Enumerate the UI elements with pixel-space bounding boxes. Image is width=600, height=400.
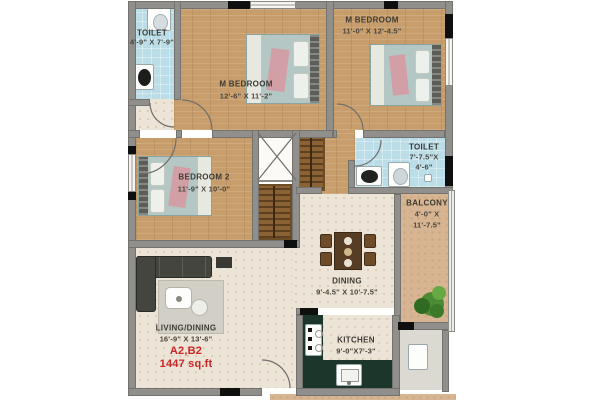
wall <box>252 130 259 248</box>
pillow <box>293 41 309 67</box>
plant-leaf <box>432 286 446 300</box>
room-dims: 4'-0" X <box>415 210 440 219</box>
bed-sheet <box>371 45 384 105</box>
wall <box>212 130 333 138</box>
window-frame <box>445 156 453 186</box>
bed-throw <box>389 54 409 95</box>
room-label: TOILET <box>409 143 439 152</box>
hatch-line <box>273 186 275 238</box>
chair-icon <box>320 234 332 248</box>
plant-icon <box>414 284 448 320</box>
room-label: M BEDROOM <box>345 16 398 25</box>
wall <box>296 315 303 392</box>
wc-bowl <box>393 168 408 185</box>
window-frame <box>284 240 297 248</box>
plate <box>344 237 352 245</box>
room-label: M BEDROOM <box>219 80 272 89</box>
plant-leaf <box>430 304 444 318</box>
unit-area: 1447 sq.ft <box>160 358 213 370</box>
washbasin-icon <box>356 166 382 186</box>
sink-basin <box>341 369 359 382</box>
side-table-icon <box>216 257 232 268</box>
window-frame <box>128 146 136 154</box>
plant-leaf <box>414 298 430 314</box>
wall <box>292 130 300 242</box>
wc-icon <box>388 162 410 187</box>
hatch-line <box>310 135 312 189</box>
window-frame <box>300 308 318 315</box>
wall <box>128 130 140 138</box>
wall <box>128 388 262 396</box>
room-label: BALCONY <box>406 199 448 208</box>
pillow <box>415 50 430 74</box>
room-dims: 11'-0" X 12'-4.5" <box>342 27 401 36</box>
wc-icon <box>147 7 171 31</box>
room-dims: 7'-7.5"X <box>409 153 438 162</box>
washbasin-icon <box>134 64 154 90</box>
bed-headboard <box>432 45 441 105</box>
window-frame <box>384 1 398 9</box>
pillow <box>293 73 309 99</box>
sink-tap <box>347 381 351 385</box>
window <box>128 154 136 192</box>
coffee-table-icon <box>165 287 192 309</box>
wall <box>348 187 453 194</box>
pillow <box>150 162 165 186</box>
wall <box>363 130 445 138</box>
wall <box>442 330 449 392</box>
unit-code: A2,B2 <box>170 345 202 357</box>
bed-headboard <box>310 35 319 103</box>
window <box>445 38 453 86</box>
room-dims: 9'-0"X7'-3" <box>336 347 376 356</box>
room-label: KITCHEN <box>337 336 375 345</box>
room-dims: 4'-6" <box>415 163 432 172</box>
wall <box>128 99 150 106</box>
window-frame <box>220 388 240 396</box>
room-label: DINING <box>332 277 362 286</box>
plate <box>344 248 352 256</box>
pillow <box>150 189 165 213</box>
floor-drain-icon <box>424 174 432 182</box>
window-frame <box>398 322 414 330</box>
basin-bowl <box>138 69 151 86</box>
window-frame <box>128 192 136 200</box>
shaft-hatch <box>297 133 325 191</box>
wall <box>326 1 334 138</box>
window-frame <box>445 14 453 38</box>
wall <box>296 388 400 396</box>
stove-knob <box>308 346 312 350</box>
room-dims: 11'-9" X 10'-0" <box>178 185 230 194</box>
room-dims: 16'-9" X 13'-6" <box>160 335 213 344</box>
wall <box>128 240 300 248</box>
room-label: TOILET <box>137 29 167 38</box>
burner <box>315 330 323 338</box>
table-decor <box>176 296 182 302</box>
chair-icon <box>364 252 376 266</box>
living-dining-opening <box>292 242 300 308</box>
basin-bowl <box>361 170 378 183</box>
bed-headboard <box>139 157 148 215</box>
burner <box>315 344 323 352</box>
room-dims: 9'-4.5" X 10'-7.5" <box>316 288 378 297</box>
pillow <box>415 78 430 102</box>
bed-icon-m-bedroom-right <box>370 44 442 106</box>
room-dims: 11'-7.5" <box>413 221 441 230</box>
chair-icon <box>320 252 332 266</box>
wall <box>296 187 322 194</box>
shaft-hatch <box>256 184 292 240</box>
wall <box>174 1 181 100</box>
room-label: LIVING/DINING <box>156 324 217 333</box>
sofa-icon-chaise <box>136 256 156 312</box>
wall <box>176 130 182 138</box>
chair-icon <box>364 234 376 248</box>
stove-knob <box>308 328 312 332</box>
ottoman-icon <box>191 299 208 316</box>
sink-icon <box>336 364 362 386</box>
room-label: BEDROOM 2 <box>178 173 229 182</box>
stove-knob <box>308 337 312 341</box>
wall <box>394 194 401 330</box>
plate <box>344 259 352 267</box>
floor-plan: TOILET 4'-9" X 7'-9" M BEDROOM 12'-6" X … <box>0 0 600 400</box>
balcony-railing <box>448 190 455 332</box>
window <box>250 1 296 9</box>
window-frame <box>228 1 250 9</box>
utility-fixture <box>408 344 428 370</box>
stove-icon <box>305 324 322 356</box>
room-dims: 12'-6" X 11'-2" <box>220 92 272 101</box>
dining-table-icon <box>334 232 362 270</box>
wall <box>333 130 337 138</box>
room-dims: 4'-9" X 7'-9" <box>130 38 174 47</box>
